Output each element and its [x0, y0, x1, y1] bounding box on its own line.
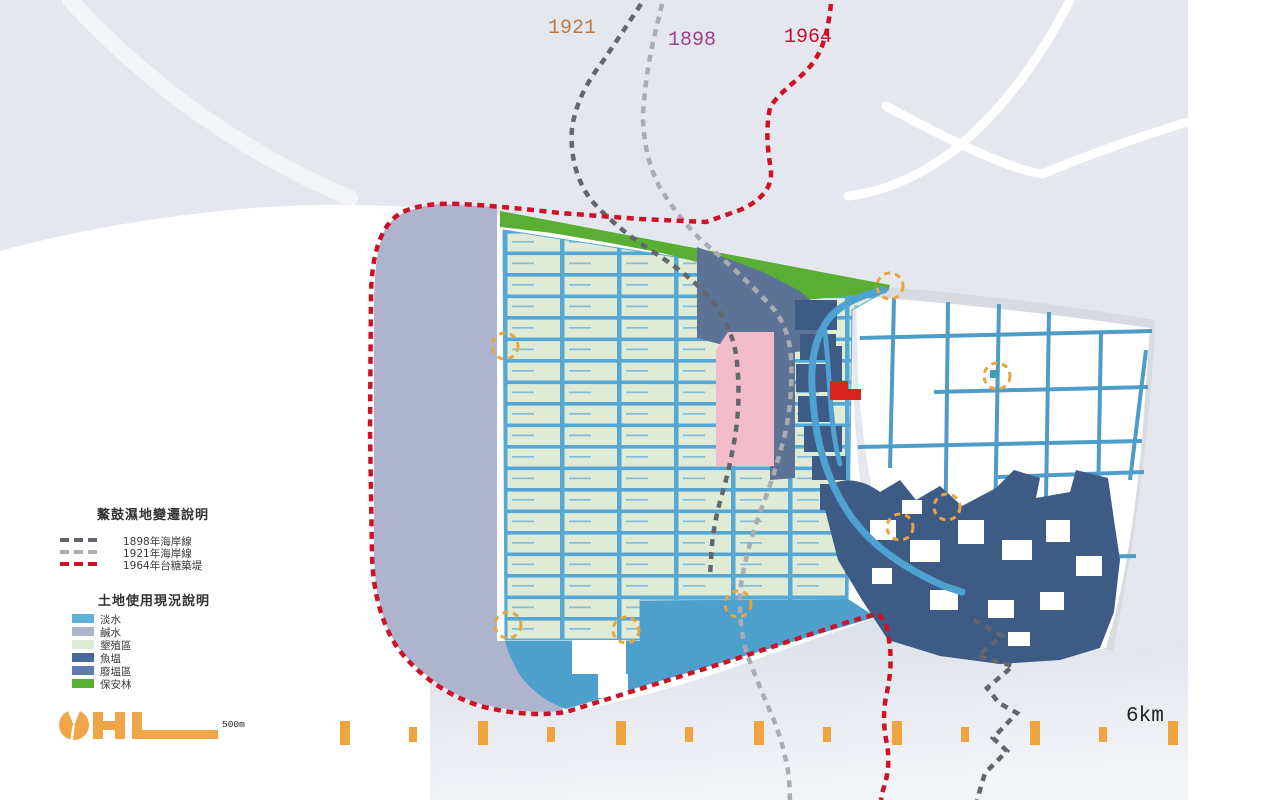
legend-line-sample-1921 [60, 550, 97, 554]
white-parcel [572, 640, 626, 674]
map-year-label-1898: 1898 [668, 29, 716, 52]
pink-area [716, 332, 774, 466]
map-year-label-1921: 1921 [548, 17, 596, 40]
legend-swatch-reclamation [72, 640, 94, 649]
legend-swatch-abandoned-pond [72, 666, 94, 675]
legend-item-fish-pond: 魚塭 [100, 651, 121, 663]
scale-bar-label: 500m [222, 719, 245, 730]
legend-item-fresh-water: 淡水 [100, 612, 121, 624]
legend-item-1921: 1921年海岸線 [123, 546, 192, 558]
legend-swatch-salt-water [72, 627, 94, 636]
legend-swatch-fresh-water [72, 614, 94, 623]
legend-item-label: 1964年台糖築堤 [123, 560, 202, 572]
map-year-label-1964: 1964 [784, 26, 832, 49]
legend-change-title: 鰲鼓濕地變遷說明 [97, 504, 209, 523]
logo-h-crossbar [93, 721, 125, 730]
ruler-distance-label: 6km [1126, 705, 1164, 728]
legend-item-reclamation: 墾殖區 [100, 638, 132, 650]
legend-line-sample-1898 [60, 538, 97, 542]
teal-marklet [990, 370, 999, 378]
white-parcel [598, 674, 628, 698]
legend-item-salt-water: 鹹水 [100, 625, 121, 637]
legend-item-1898: 1898年海岸線 [123, 534, 192, 546]
legend-swatch-protection-forest [72, 679, 94, 688]
legend-item-abandoned-pond: 廢塭區 [100, 664, 132, 676]
legend-item-protection-forest: 保安林 [100, 677, 132, 689]
legend-item-1964: 1964年台糖築堤 [123, 558, 202, 570]
legend-line-sample-1964 [60, 562, 97, 566]
wetland-map: 1921 1898 1964 6km 500m [0, 0, 1280, 800]
legend-item-label: 保安林 [100, 679, 132, 691]
map-page: 1921 1898 1964 6km 500m 鰲鼓濕地變遷說明 1898年海岸… [0, 0, 1280, 800]
legend-swatch-fish-pond [72, 653, 94, 662]
legend-landuse-title: 土地使用現況說明 [98, 590, 210, 609]
scale-bar-line [132, 730, 218, 739]
